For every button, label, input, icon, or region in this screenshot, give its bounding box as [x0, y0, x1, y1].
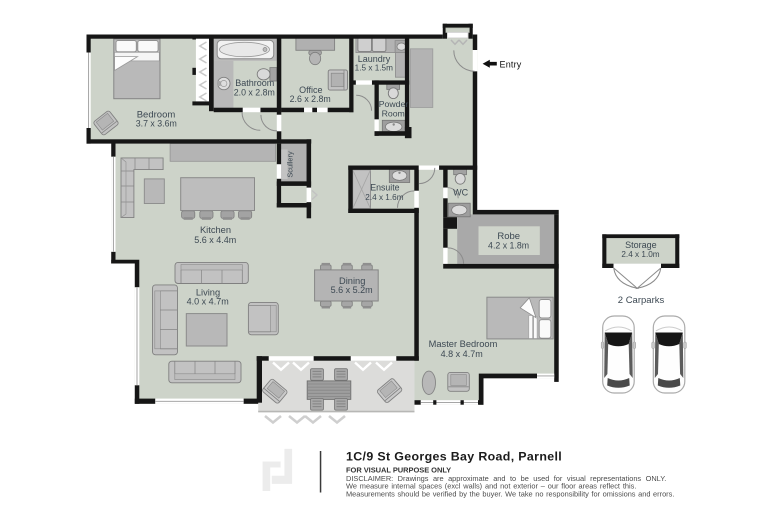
- svg-text:Ensuite: Ensuite: [370, 183, 399, 193]
- svg-text:Master Bedroom: Master Bedroom: [429, 339, 498, 349]
- svg-text:2.6 x 2.8m: 2.6 x 2.8m: [290, 94, 331, 104]
- svg-text:2.0 x 2.8m: 2.0 x 2.8m: [234, 87, 275, 97]
- svg-text:3.7 x 3.6m: 3.7 x 3.6m: [136, 119, 177, 129]
- svg-text:Room: Room: [382, 108, 405, 118]
- svg-text:Scullery: Scullery: [286, 151, 295, 178]
- svg-text:2 Carparks: 2 Carparks: [618, 295, 665, 306]
- svg-text:1.5 x 1.5m: 1.5 x 1.5m: [355, 63, 393, 72]
- svg-text:Kitchen: Kitchen: [200, 225, 231, 235]
- svg-text:4.8 x 4.7m: 4.8 x 4.7m: [441, 349, 483, 359]
- svg-text:Measurements should be verifie: Measurements should be verified by the b…: [346, 490, 674, 499]
- svg-text:5.6 x 5.2m: 5.6 x 5.2m: [331, 285, 373, 295]
- svg-text:WC: WC: [453, 188, 468, 198]
- svg-text:Storage: Storage: [625, 240, 657, 250]
- svg-text:2.4 x 1.0m: 2.4 x 1.0m: [621, 250, 659, 259]
- svg-text:2.4 x 1.6m: 2.4 x 1.6m: [365, 193, 403, 202]
- svg-text:4.0 x 4.7m: 4.0 x 4.7m: [187, 297, 229, 307]
- svg-text:4.2 x 1.8m: 4.2 x 1.8m: [488, 241, 529, 251]
- svg-text:Entry: Entry: [500, 59, 522, 69]
- svg-text:1C/9 St Georges Bay Road, Parn: 1C/9 St Georges Bay Road, Parnell: [346, 450, 562, 464]
- svg-text:5.6 x 4.4m: 5.6 x 4.4m: [194, 235, 236, 245]
